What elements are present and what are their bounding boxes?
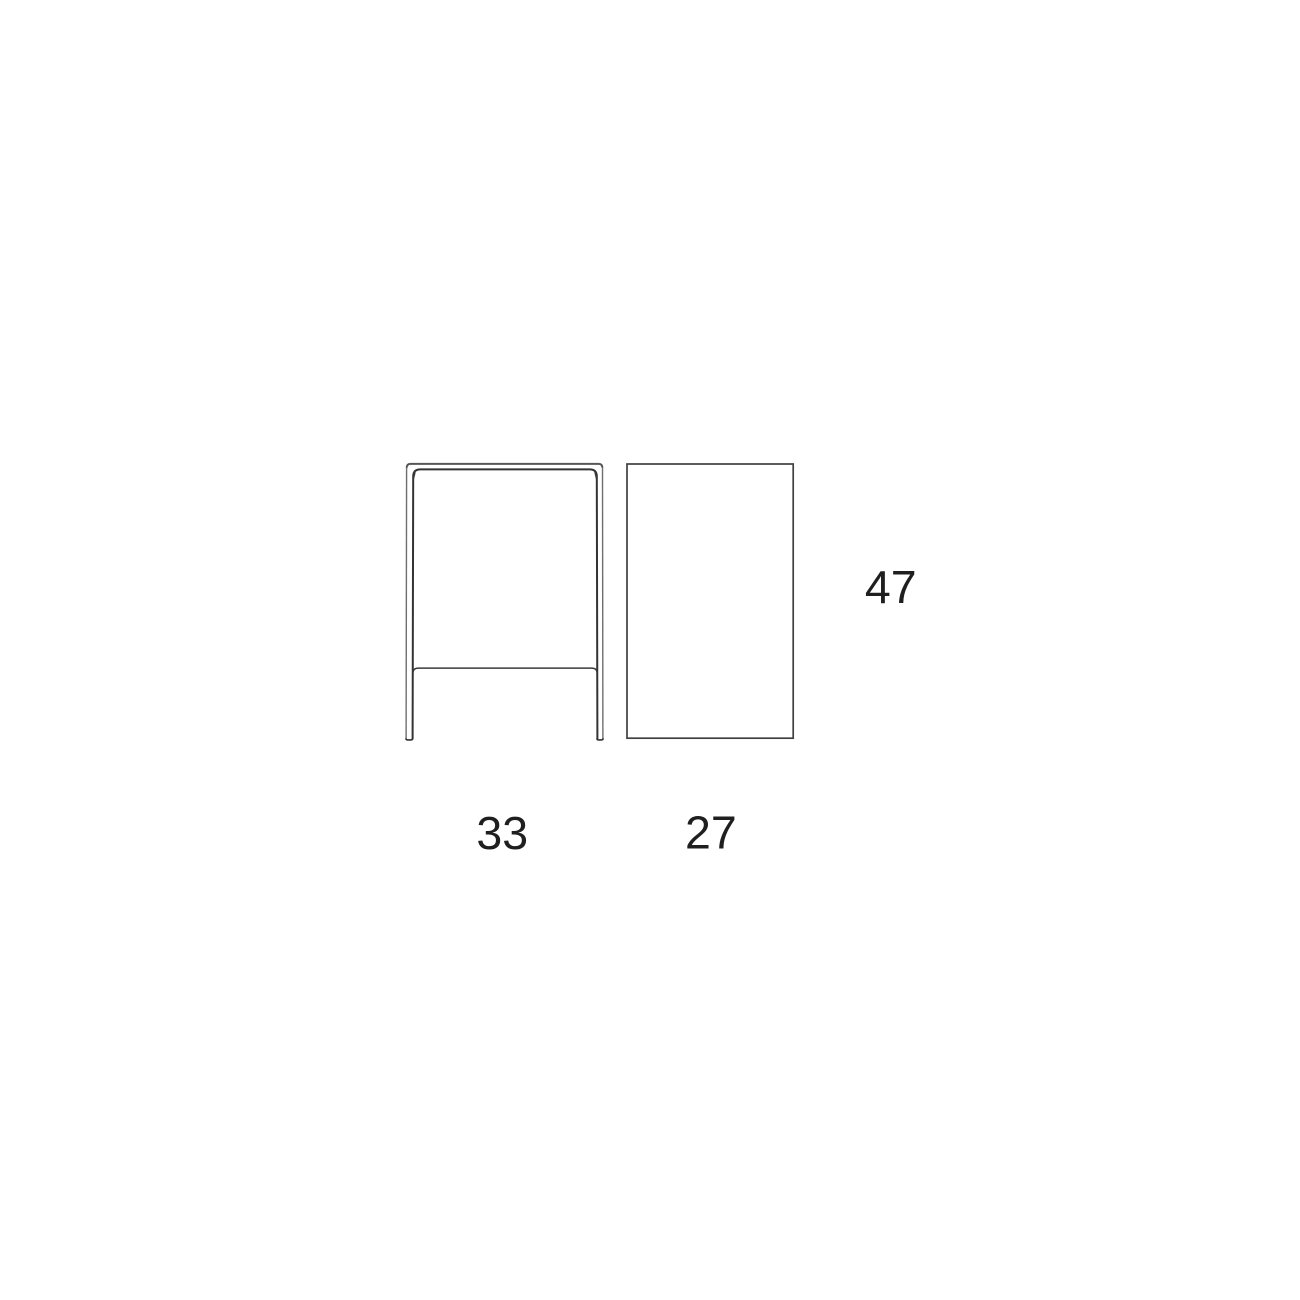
svg-text:27: 27 xyxy=(685,807,737,859)
svg-text:47: 47 xyxy=(865,561,917,613)
svg-text:33: 33 xyxy=(476,807,528,859)
